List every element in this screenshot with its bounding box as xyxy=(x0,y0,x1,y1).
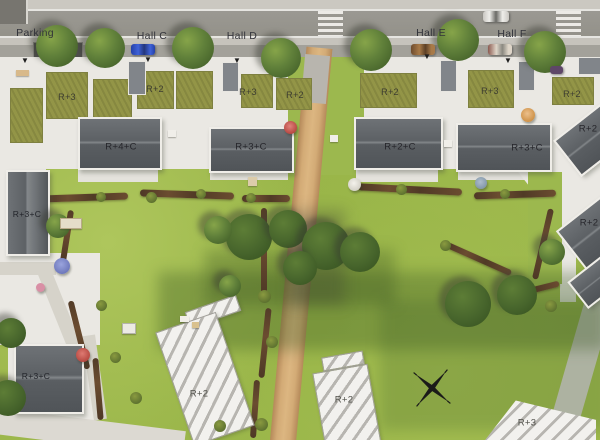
corner-building-roof xyxy=(0,0,28,24)
entry-arrow-hall-d: ▼ xyxy=(233,57,241,65)
bush-12 xyxy=(130,392,142,404)
entry-arrow-hall-f: ▼ xyxy=(504,57,512,65)
sidewalk-top xyxy=(0,0,600,9)
compass-rose-icon xyxy=(408,364,456,412)
bush-9 xyxy=(255,418,268,431)
bush-2 xyxy=(196,189,206,199)
bush-13 xyxy=(545,300,557,312)
building-label-r4c: R+4+C xyxy=(105,142,137,153)
hall-e-label: Hall E xyxy=(416,27,446,39)
pergola-left xyxy=(60,218,82,229)
parking-label: Parking xyxy=(16,27,54,39)
car-purple xyxy=(550,66,563,74)
roof-label-6: R+3 xyxy=(481,86,499,96)
bench-top-left xyxy=(16,70,29,76)
plot-label-1: R+2 xyxy=(190,389,209,400)
terrace-table-3 xyxy=(444,140,452,147)
bush-7 xyxy=(258,290,271,303)
site-plan: ▼ ▼ ▼ ▼ ▼ Parking Hall C Hall D Hall E H… xyxy=(0,0,600,440)
building-label-right-diag-1: R+2 xyxy=(579,124,598,135)
street-tree-4 xyxy=(261,38,301,78)
hedge-right-arc-1 xyxy=(446,242,512,276)
hall-d-label: Hall D xyxy=(227,30,257,42)
hedge-row-1 xyxy=(42,193,128,203)
umbrella-red-2 xyxy=(76,348,90,362)
garden-shed xyxy=(122,323,136,334)
pink-table-set xyxy=(36,283,45,292)
car-white xyxy=(483,11,509,22)
park-tree-8 xyxy=(204,216,232,244)
umbrella-violet xyxy=(54,258,70,274)
stair-core-3 xyxy=(440,60,457,92)
roof-block-2b xyxy=(176,71,213,109)
roof-label-5: R+2 xyxy=(381,87,399,97)
right-garden-tree xyxy=(539,239,565,265)
bush-5 xyxy=(396,184,407,195)
park-tree-10 xyxy=(219,275,241,297)
plot-label-3: R+3 xyxy=(518,418,537,429)
roof-label-2: R+2 xyxy=(146,84,164,94)
park-tree-5 xyxy=(283,251,317,285)
building-label-right-diag-2: R+2 xyxy=(580,218,599,229)
umbrella-orange xyxy=(521,108,535,122)
park-tree-4 xyxy=(340,232,380,272)
building-label-r3c-mid: R+3+C xyxy=(235,142,267,153)
park-tree-7 xyxy=(497,275,537,315)
roof-label-4: R+2 xyxy=(286,90,304,100)
terrace-table-2 xyxy=(330,135,338,142)
street-tree-5 xyxy=(350,29,392,71)
picnic-table xyxy=(248,177,257,186)
playground-item-1 xyxy=(180,316,189,322)
terrace-table-1 xyxy=(168,130,176,137)
roof-label-3: R+3 xyxy=(239,87,257,97)
roof-block-left-edge xyxy=(10,88,43,143)
building-label-left-mid: R+3+C xyxy=(13,209,41,219)
park-tree-6 xyxy=(445,281,491,327)
crosswalk-right xyxy=(556,11,581,36)
street-tree-2 xyxy=(85,28,125,68)
bush-1 xyxy=(146,192,157,203)
stair-core-2 xyxy=(222,62,239,92)
crosswalk-left xyxy=(318,11,343,36)
roof-block-1b xyxy=(93,79,132,118)
entry-arrow-hall-c: ▼ xyxy=(144,56,152,64)
car-blue xyxy=(131,44,155,55)
hall-c-label: Hall C xyxy=(137,30,167,42)
playground-item-2 xyxy=(192,322,199,328)
car-beige xyxy=(488,44,512,55)
entry-arrow-hall-e: ▼ xyxy=(423,53,431,61)
bush-10 xyxy=(96,300,107,311)
stair-core-1 xyxy=(128,61,146,95)
bush-15 xyxy=(214,420,226,432)
bush-4 xyxy=(96,192,106,202)
bush-6 xyxy=(500,189,510,199)
building-label-r2c: R+2+C xyxy=(384,142,416,153)
street-tree-3 xyxy=(172,27,214,69)
entry-arrow-parking: ▼ xyxy=(21,57,29,65)
road-edge-line-top xyxy=(0,9,600,11)
roof-label-7: R+2 xyxy=(563,89,581,99)
umbrella-blue-gray xyxy=(475,177,487,189)
street-tree-6 xyxy=(437,19,479,61)
roof-label-1: R+3 xyxy=(58,92,76,102)
bush-14 xyxy=(440,240,451,251)
umbrella-white xyxy=(348,178,361,191)
top-right-roof xyxy=(578,57,600,75)
park-tree-1 xyxy=(226,214,272,260)
plot-label-2: R+2 xyxy=(335,395,354,406)
bush-3 xyxy=(246,193,256,203)
bush-8 xyxy=(266,336,278,348)
building-label-r3c-right: R+3+C xyxy=(511,143,543,154)
hedge-row-4 xyxy=(358,183,462,195)
umbrella-red xyxy=(284,121,297,134)
hall-f-label: Hall F xyxy=(497,28,526,40)
bush-11 xyxy=(110,352,121,363)
building-label-left-bottom: R+3+C xyxy=(22,371,50,381)
